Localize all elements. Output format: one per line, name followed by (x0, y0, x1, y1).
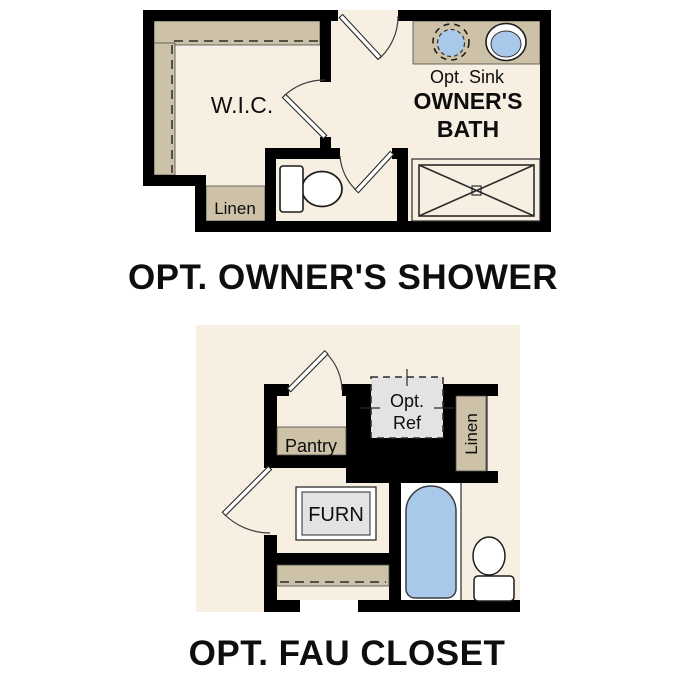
wall (320, 137, 331, 148)
wall (456, 471, 498, 483)
page-gap (300, 600, 358, 615)
owners-shower-title: OPT. OWNER'S SHOWER (128, 258, 558, 297)
page-gap (135, 186, 195, 240)
floorplan-canvas: W.I.C. Linen Opt. Sink OWNER'S BATH OPT.… (0, 0, 687, 687)
toilet-tank (474, 576, 514, 601)
wall (195, 221, 551, 232)
wall (540, 10, 551, 232)
wall (320, 10, 331, 82)
linen-label: Linen (214, 199, 256, 218)
wall (265, 148, 276, 232)
wall (264, 384, 289, 396)
wall (143, 10, 338, 21)
bathtub-fixture (401, 483, 461, 600)
pantry-label: Pantry (285, 436, 337, 456)
floorplan-page: W.I.C. Linen Opt. Sink OWNER'S BATH OPT.… (0, 0, 687, 687)
wall (265, 148, 340, 159)
wic-label: W.I.C. (211, 92, 274, 118)
linen-label-vertical: Linen (462, 413, 481, 455)
toilet-bowl (473, 537, 505, 575)
wall (264, 553, 401, 565)
closet-shelf (277, 565, 389, 586)
bathtub (406, 486, 456, 598)
opt-sink-label: Opt. Sink (430, 67, 505, 87)
wall (456, 384, 498, 396)
wall (264, 455, 358, 468)
opt-ref-label-2: Ref (393, 413, 422, 433)
owners-bath-label-1: OWNER'S (414, 88, 523, 114)
sink-fixture (486, 24, 526, 61)
furn-label: FURN (308, 504, 364, 526)
fau-closet-plan: Pantry Opt. Ref FURN Linen (196, 325, 520, 615)
opt-sink-bowl (438, 30, 465, 57)
toilet-tank (280, 166, 303, 212)
wall (398, 10, 551, 21)
fau-closet-title: OPT. FAU CLOSET (189, 634, 506, 673)
wall (397, 148, 408, 232)
toilet-bowl (302, 172, 342, 207)
wall (143, 10, 154, 186)
owners-bath-label-2: BATH (437, 116, 499, 142)
wall (389, 468, 401, 612)
opt-ref-label-1: Opt. (390, 391, 424, 411)
owners-shower-plan: W.I.C. Linen Opt. Sink OWNER'S BATH (135, 10, 551, 240)
sink-bowl (491, 31, 521, 57)
